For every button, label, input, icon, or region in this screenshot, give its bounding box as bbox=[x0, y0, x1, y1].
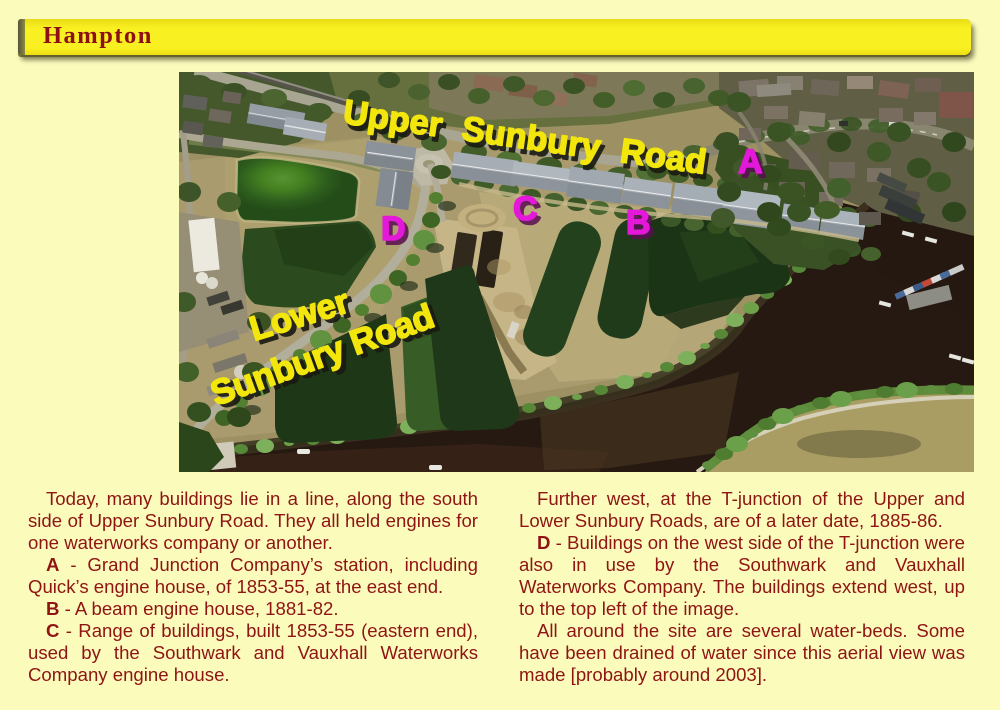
svg-text:B: B bbox=[626, 204, 651, 242]
svg-text:D: D bbox=[381, 210, 406, 248]
svg-text:A: A bbox=[738, 143, 763, 181]
svg-text:C: C bbox=[513, 190, 538, 228]
